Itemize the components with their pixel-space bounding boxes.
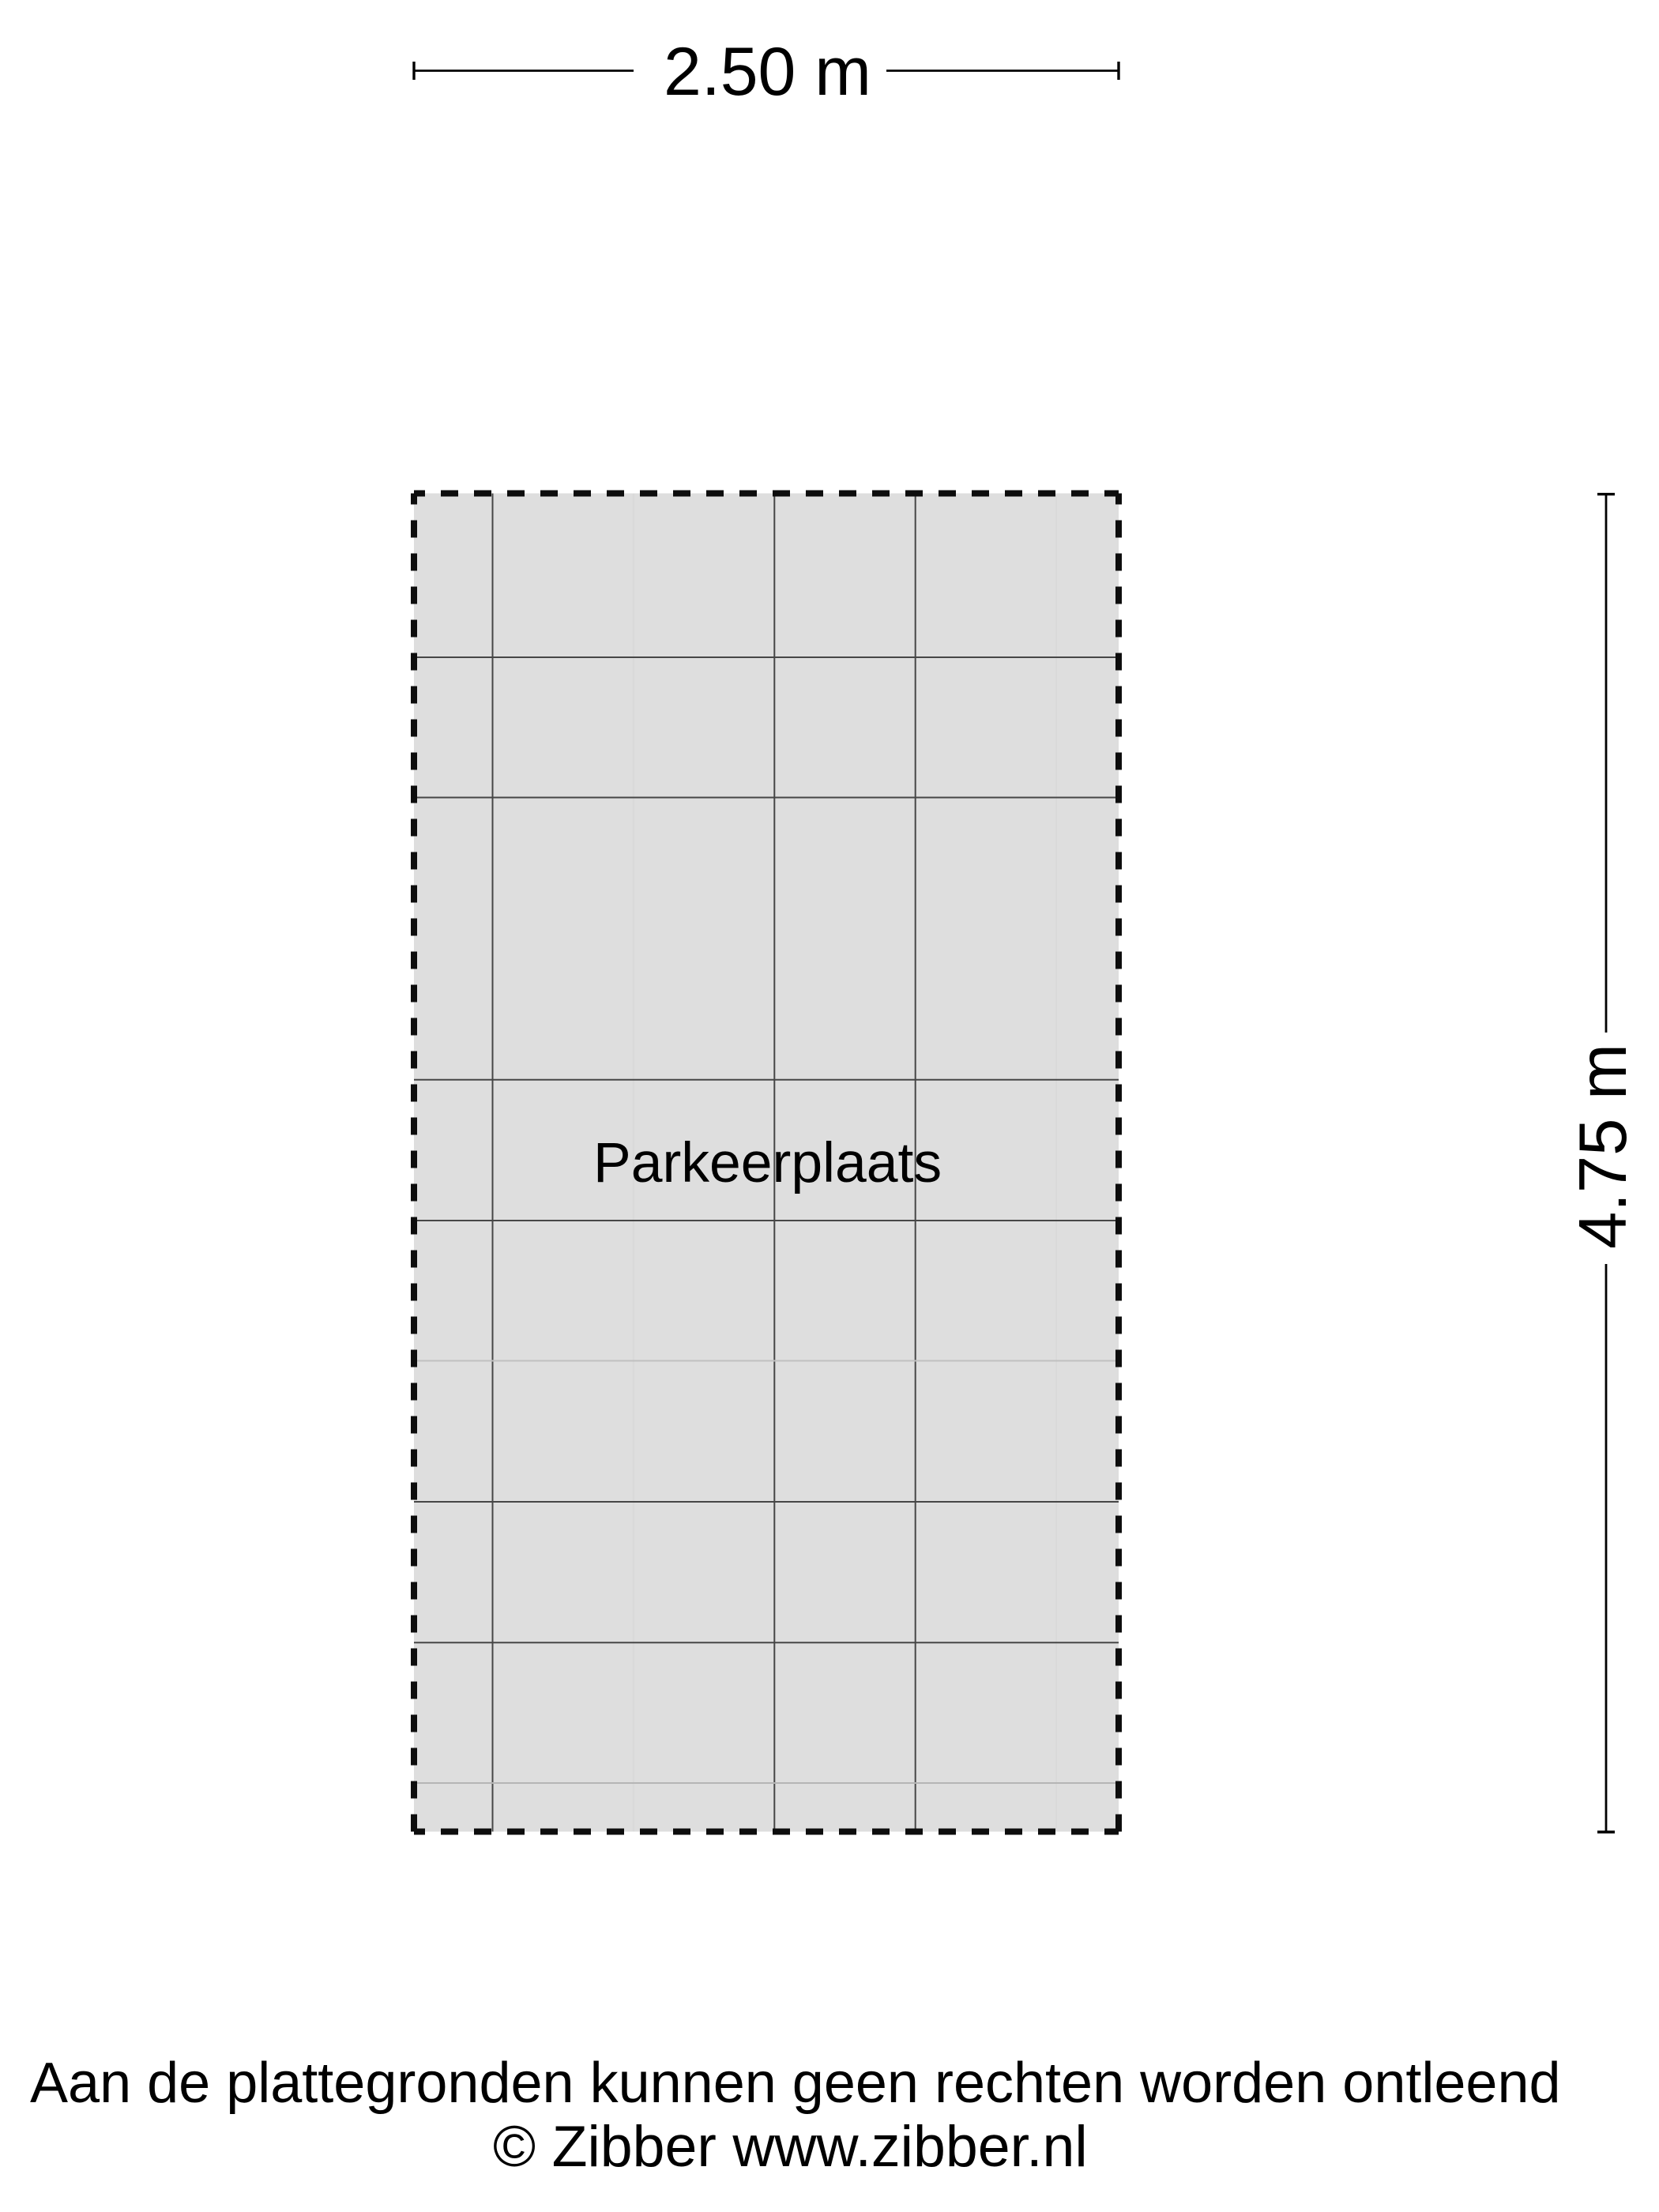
svg-text:Aan de plattegronden kunnen ge: Aan de plattegronden kunnen geen rechten… <box>30 2052 1561 2115</box>
svg-text:Parkeerplaats: Parkeerplaats <box>593 1131 942 1194</box>
svg-text:2.50 m: 2.50 m <box>664 34 871 110</box>
svg-text:4.75 m: 4.75 m <box>1566 1044 1641 1249</box>
svg-text:© Zibber www.zibber.nl: © Zibber www.zibber.nl <box>493 2113 1088 2179</box>
